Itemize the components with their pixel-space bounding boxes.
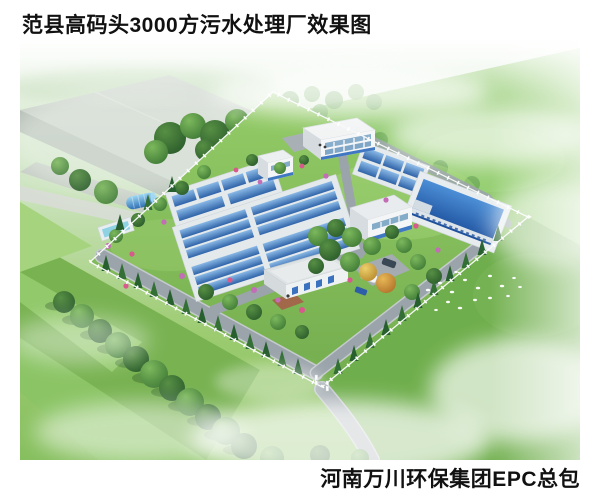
page-title: 范县高码头3000方污水处理厂效果图 <box>22 9 372 39</box>
plant-rendering-image <box>20 40 580 460</box>
epc-contractor-credit: 河南万川环保集团EPC总包 <box>320 463 580 493</box>
plant-rendering-svg <box>20 40 580 460</box>
